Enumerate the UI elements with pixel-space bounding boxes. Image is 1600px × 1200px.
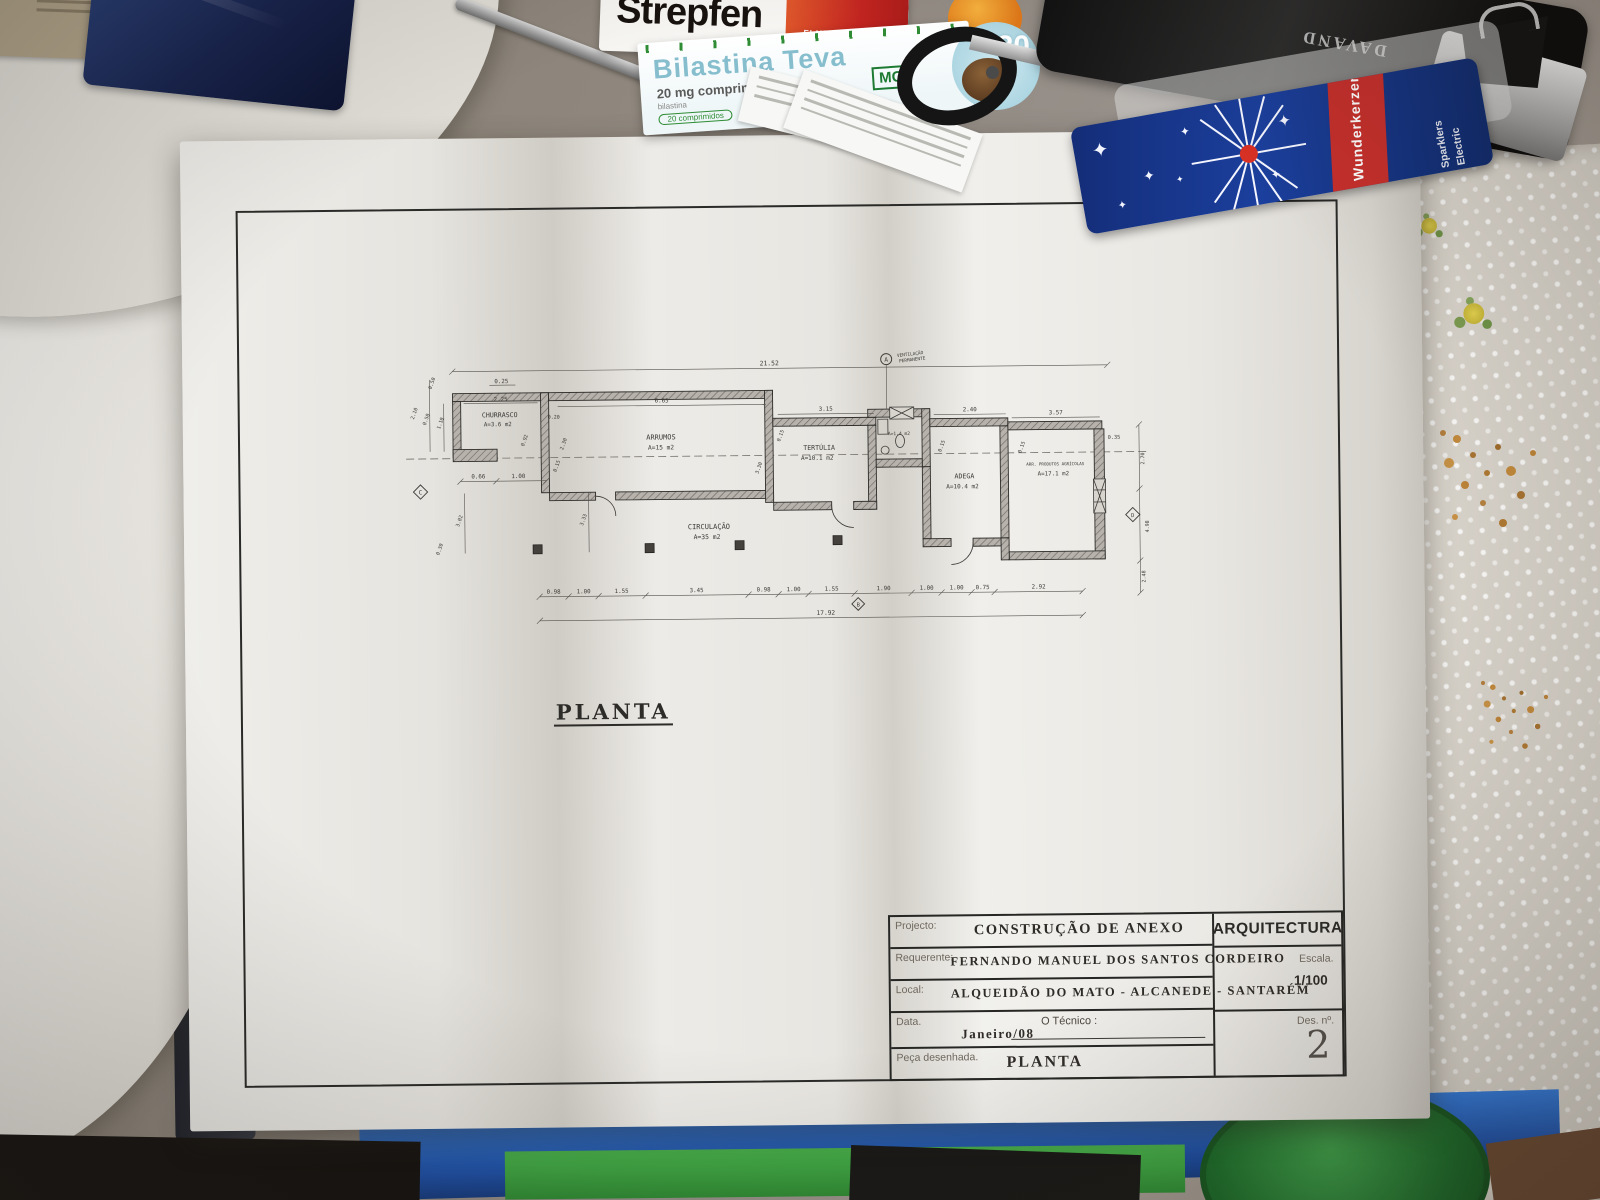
title-block: Projecto: CONSTRUÇÃO DE ANEXO Requerente…	[888, 910, 1345, 1081]
room-area: A=35 m2	[694, 533, 721, 541]
local-value: ALQUEIDÃO DO MATO - ALCANEDE - SANTARÉM	[951, 984, 1209, 1002]
dim-label: 3.30	[755, 461, 765, 474]
dim-label: 0.50	[422, 413, 432, 426]
dim-label: 3.33	[579, 513, 589, 526]
drawing-sheet: A C B D VENTILAÇÃO PERMANENTE CHURRASCO …	[180, 129, 1430, 1132]
dim-label: 0.98	[757, 587, 772, 593]
projecto-label: Projecto:	[895, 920, 937, 932]
dim-label: 2.25	[494, 397, 509, 403]
peca-label: Peça desenhada.	[896, 1051, 978, 1064]
plan-caption: PLANTA	[554, 698, 673, 726]
dim-label: 3.57	[1049, 410, 1064, 416]
room-label: TERTÚLIA	[803, 443, 835, 452]
scissors-screw	[986, 66, 999, 79]
row-requerente: Requerente: FERNANDO MANUEL DOS SANTOS C…	[890, 946, 1212, 981]
dim-label: 1.90	[877, 586, 892, 592]
dim-label: 2.40	[963, 407, 978, 413]
strepfen-brand: Strepfen	[615, 0, 763, 37]
dim-label: 1.00	[787, 587, 802, 593]
dim-label: 2.10	[410, 407, 420, 420]
photo-scene: A C B D VENTILAÇÃO PERMANENTE CHURRASCO …	[0, 0, 1600, 1200]
discipline-value: ARQUITECTURA	[1214, 912, 1341, 947]
row-data: Data. Janeiro/08 O Técnico :	[891, 1009, 1213, 1049]
dim-label: 1.00	[950, 585, 965, 591]
dim-label: 0.15	[1017, 441, 1027, 454]
dim-label: 17.92	[816, 610, 835, 617]
room-label: ARRUMOS	[646, 433, 676, 441]
dim-label: 0.15	[776, 429, 786, 442]
dim-label: 0.92	[520, 434, 530, 447]
dim-label: 1.55	[825, 587, 840, 593]
dim-label: 21.52	[760, 359, 779, 367]
des-cell: Des. nº. 2	[1215, 1010, 1343, 1075]
room-area: A=10.1 m2	[801, 455, 834, 462]
room-area: A=15 m2	[648, 444, 674, 451]
room-area: A=10.4 m2	[946, 483, 979, 490]
crumbs	[1481, 681, 1485, 685]
marker-c: C	[419, 489, 423, 496]
tecnico-label: O Técnico :	[1041, 1015, 1097, 1028]
dim-label: 4.98	[1145, 520, 1151, 532]
dim-label: 3.02	[455, 515, 465, 528]
room-label: ARR. PRODUTOS AGRÍCOLAS	[1026, 461, 1085, 467]
des-number: 2	[1306, 1023, 1331, 1067]
dim-label: 0.30	[435, 543, 445, 556]
dim-label: 3.45	[690, 588, 705, 594]
section-line	[406, 451, 1146, 459]
star-icon: ✦	[1090, 136, 1111, 164]
porch-columns	[533, 536, 842, 554]
dim-label: 0.15	[937, 440, 947, 453]
marker-d: D	[1131, 513, 1134, 519]
sparkler-brand: Wunderkerzen	[1345, 72, 1367, 181]
dim-label: 0.35	[1108, 435, 1121, 441]
bilastina-inn: bilastina	[657, 100, 687, 111]
dim-label: 0.15	[553, 460, 563, 473]
sparkler-text: Sparklers Electric	[1423, 66, 1468, 169]
dim-label: 0.66	[471, 474, 486, 480]
title-block-left: Projecto: CONSTRUÇÃO DE ANEXO Requerente…	[890, 914, 1216, 1079]
local-label: Local:	[896, 984, 924, 996]
data-label: Data.	[896, 1016, 921, 1028]
row-local: Local: ALQUEIDÃO DO MATO - ALCANEDE - SA…	[891, 978, 1213, 1013]
embroidered-flower	[1463, 303, 1485, 325]
dim-label: 1.00	[511, 474, 526, 480]
dim-label: 2.92	[1032, 584, 1046, 590]
star-icon: ✦	[1142, 167, 1157, 186]
peca-value: PLANTA	[1006, 1052, 1209, 1072]
dim-label: 0.50	[428, 377, 438, 390]
room-label: ADEGA	[954, 472, 974, 480]
dim-label: 1.00	[577, 589, 592, 595]
bilastina-count: 20 comprimidos	[658, 109, 733, 125]
room-label: CHURRASCO	[482, 411, 518, 419]
requerente-label: Requerente:	[895, 951, 953, 964]
escala-label: Escala.	[1299, 952, 1334, 964]
room-area: A=17.1 m2	[1038, 471, 1069, 477]
escala-cell: Escala. 1/100	[1214, 946, 1342, 1011]
dim-label: 2.30	[559, 437, 569, 450]
floor-plan: A C B D VENTILAÇÃO PERMANENTE CHURRASCO …	[397, 346, 1160, 664]
room-label: CIRCULAÇÃO	[688, 522, 730, 531]
dim-label: 2.70	[1140, 452, 1146, 464]
dim-label: 1.55	[615, 589, 630, 595]
escala-value: 1/100	[1294, 973, 1328, 988]
crumbs	[1440, 430, 1446, 436]
dim-label: 1.10	[436, 417, 446, 430]
star-icon: ✦	[1117, 198, 1128, 212]
dim-label: 0.75	[976, 585, 991, 591]
dim-label: 6.65	[655, 398, 670, 404]
room-area: A=1.4 m2	[888, 431, 910, 437]
marker-a: A	[884, 357, 888, 364]
marker-b: B	[857, 602, 861, 608]
room-area: A=3.6 m2	[484, 422, 512, 428]
dim-label: 0.20	[548, 415, 560, 421]
star-icon: ✦	[1175, 174, 1184, 186]
table-shadow	[849, 1145, 1141, 1200]
section-markers	[412, 351, 1141, 615]
title-block-right: ARQUITECTURA Escala. 1/100 Des. nº. 2	[1214, 912, 1343, 1075]
dim-label: 1.00	[920, 586, 935, 592]
row-projecto: Projecto: CONSTRUÇÃO DE ANEXO	[890, 914, 1212, 949]
dim-label: 3.15	[819, 407, 834, 413]
dim-label: 0.98	[547, 590, 562, 596]
row-peca: Peça desenhada. PLANTA	[891, 1046, 1213, 1079]
dim-label: 2.48	[1141, 570, 1147, 582]
dim-label: 0.25	[494, 379, 509, 385]
projecto-value: CONSTRUÇÃO DE ANEXO	[950, 920, 1208, 940]
table-shadow	[0, 1134, 421, 1200]
requerente-value: FERNANDO MANUEL DOS SANTOS CORDEIRO	[950, 952, 1208, 970]
embroidered-flower	[1421, 218, 1437, 234]
